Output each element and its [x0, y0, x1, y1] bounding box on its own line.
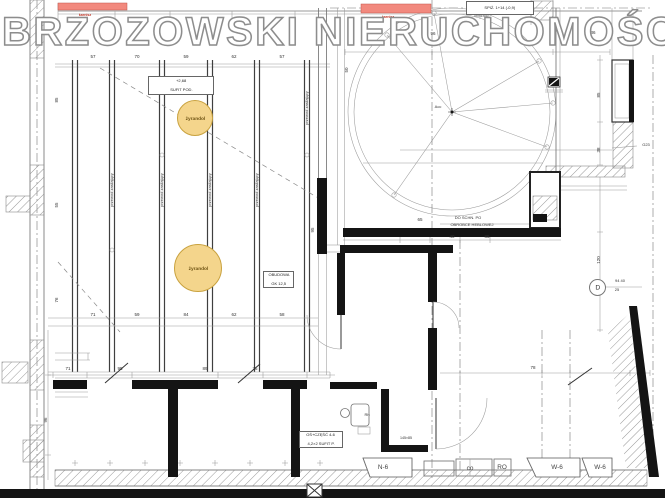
dim-annotation: 120 — [597, 256, 602, 264]
dim-annotation: 58 — [279, 313, 284, 318]
dim-annotation: przewod zasilający — [160, 173, 164, 207]
chandelier-label: żyrandol — [185, 115, 205, 120]
dim-annotation: Rh — [364, 413, 369, 417]
watermark-text: BRZOZOWSKI NIERUCHOMOŚCI — [2, 10, 665, 55]
dim-annotation: 94 40 — [615, 279, 625, 283]
dim-annotation: 76 — [55, 297, 60, 302]
dim-annotation: G23 — [642, 143, 650, 147]
dim-annotation: przewod zasilający — [110, 173, 114, 207]
dim-annotation: 55 — [55, 202, 60, 207]
dim-annotation: 62 — [231, 55, 236, 60]
dim-annotation: 57 — [90, 55, 95, 60]
dim-annotation: 145×85 — [400, 436, 412, 440]
dim-annotation: 85 — [55, 97, 60, 102]
dim-annotation: OBROBCE HEBLOWEJ — [450, 223, 493, 227]
casing-note-box: OBUDOWA GK 12,5 — [263, 271, 294, 288]
mid-label-box: OŚ+CZĘŚĆ 4-6 4,2×2 SUFIT P. — [299, 431, 343, 448]
window-label: W-6 — [551, 463, 563, 470]
casing-note-line2: GK 12,5 — [271, 282, 286, 286]
dim-annotation: DO SCHN. PO — [455, 216, 481, 220]
casing-note-line1: OBUDOWA — [268, 273, 289, 277]
ceiling-height-value: +2,68 — [176, 79, 186, 83]
dim-annotation: 62 — [231, 313, 236, 318]
mid-label-line1: OŚ+CZĘŚĆ 4-6 — [307, 433, 336, 437]
dim-annotation: 78 — [530, 366, 535, 371]
dim-annotation: 85 — [597, 92, 602, 97]
chandelier-circle: żyrandol — [177, 100, 213, 136]
ceiling-height-box: +2,68 SUFIT POD. — [148, 76, 214, 95]
dim-annotation: 95 — [311, 227, 316, 232]
dim-annotation: 70 — [134, 55, 139, 60]
axis-marker-d: D — [589, 279, 606, 296]
dim-annotation: 65 — [417, 218, 422, 223]
chandelier-label: żyrandol — [188, 265, 208, 270]
dim-annotation: 76 — [252, 367, 257, 372]
dim-annotation: przewod zasilający — [305, 91, 309, 125]
dim-annotation: przewod zasilający — [208, 173, 212, 207]
axis-marker-letter: D — [595, 284, 600, 292]
chandelier-circle: żyrandol — [174, 244, 222, 292]
dim-annotation: 71 — [65, 367, 70, 372]
dim-annotation: 59 — [183, 55, 188, 60]
dim-annotation: 50 — [345, 67, 350, 72]
dim-annotation: 71 — [90, 313, 95, 318]
dim-annotation: 96 — [44, 417, 49, 422]
window-label: N-6 — [378, 463, 388, 470]
window-label: co — [467, 464, 474, 471]
dim-annotation: 85 — [484, 235, 489, 240]
dim-annotation: 57 — [279, 55, 284, 60]
window-label: W-6 — [594, 463, 606, 470]
labels-overlay: +2,68 SUFIT POD. SPIŻ. 1+14 (-0,9) obniż… — [0, 0, 665, 500]
dim-annotation: 25 — [615, 288, 619, 292]
dim-annotation: 95 — [117, 367, 122, 372]
ceiling-label: SUFIT POD. — [170, 88, 192, 92]
mid-label-line2: 4,2×2 SUFIT P. — [307, 442, 334, 446]
floor-plan-image: +2,68 SUFIT POD. SPIŻ. 1+14 (-0,9) obniż… — [0, 0, 665, 500]
dim-annotation: 40 — [449, 235, 454, 240]
dim-annotation: 84 — [183, 313, 188, 318]
dim-annotation: Acc — [435, 105, 442, 109]
dim-annotation: 89 — [202, 367, 207, 372]
dim-annotation: przewod zasilający — [255, 173, 259, 207]
dim-annotation: 59 — [134, 313, 139, 318]
dim-annotation: 38 — [597, 147, 602, 152]
window-label: RO — [497, 463, 507, 470]
